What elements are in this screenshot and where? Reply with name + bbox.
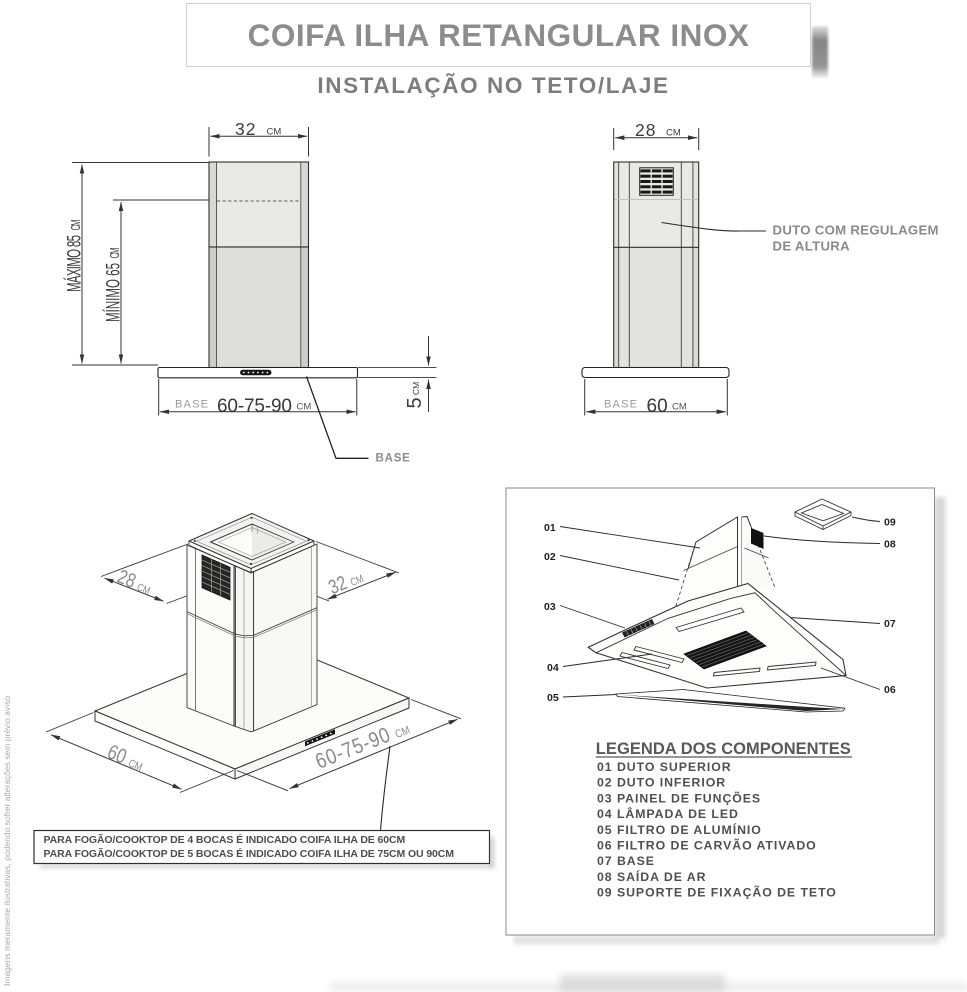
svg-text:08 SAÍDA DE AR: 08 SAÍDA DE AR (597, 869, 706, 884)
svg-text:CM: CM (672, 402, 687, 413)
svg-text:BASE: BASE (604, 399, 638, 411)
svg-text:01 DUTO SUPERIOR: 01 DUTO SUPERIOR (597, 760, 732, 774)
svg-text:PARA FOGÃO/COOKTOP DE 5 BOCAS: PARA FOGÃO/COOKTOP DE 5 BOCAS É INDICADO… (44, 847, 455, 860)
svg-text:60: 60 (647, 396, 668, 417)
svg-text:32: 32 (235, 119, 256, 139)
svg-text:03 PAINEL DE FUNÇÕES: 03 PAINEL DE FUNÇÕES (597, 790, 761, 805)
svg-text:04 LÂMPADA DE LED: 04 LÂMPADA DE LED (597, 806, 739, 821)
svg-text:DUTO COM REGULAGEM: DUTO COM REGULAGEM (773, 223, 939, 238)
svg-text:08: 08 (884, 539, 896, 551)
svg-text:05 FILTRO DE ALUMÍNIO: 05 FILTRO DE ALUMÍNIO (597, 822, 762, 837)
svg-text:BASE: BASE (376, 453, 411, 465)
svg-text:09: 09 (884, 517, 896, 529)
svg-text:CM: CM (411, 382, 421, 395)
svg-text:07 BASE: 07 BASE (597, 854, 655, 868)
svg-text:05: 05 (547, 692, 559, 704)
svg-text:03: 03 (544, 601, 556, 613)
svg-text:06 FILTRO DE CARVÃO ATIVADO: 06 FILTRO DE CARVÃO ATIVADO (597, 838, 817, 853)
svg-text:LEGENDA DOS COMPONENTES: LEGENDA DOS COMPONENTES (596, 740, 851, 758)
svg-text:60-75-90: 60-75-90 (217, 396, 292, 417)
svg-text:32CM: 32CM (325, 565, 366, 599)
svg-text:06: 06 (884, 684, 896, 696)
svg-text:MÍNIMO 65: MÍNIMO 65 (101, 263, 124, 322)
svg-text:PARA FOGÃO/COOKTOP DE 4 BOCAS: PARA FOGÃO/COOKTOP DE 4 BOCAS É INDICADO… (44, 833, 406, 846)
svg-text:MÁXIMO 85: MÁXIMO 85 (62, 235, 85, 292)
svg-text:DE ALTURA: DE ALTURA (773, 239, 851, 254)
svg-text:CM: CM (267, 127, 282, 138)
svg-text:CM: CM (108, 248, 123, 259)
svg-text:5: 5 (404, 397, 426, 408)
svg-text:CM: CM (666, 128, 681, 139)
svg-text:CM: CM (297, 402, 312, 413)
svg-text:07: 07 (884, 618, 896, 630)
svg-text:BASE: BASE (175, 399, 209, 411)
svg-text:CM: CM (69, 220, 84, 231)
svg-text:60CM: 60CM (104, 740, 147, 776)
svg-text:02: 02 (544, 551, 556, 563)
svg-text:01: 01 (544, 522, 556, 534)
svg-text:04: 04 (547, 662, 559, 674)
svg-text:28CM: 28CM (114, 565, 155, 599)
svg-text:09 SUPORTE DE FIXAÇÃO DE TETO: 09 SUPORTE DE FIXAÇÃO DE TETO (597, 885, 837, 900)
svg-text:28: 28 (635, 120, 656, 140)
svg-text:02 DUTO INFERIOR: 02 DUTO INFERIOR (597, 776, 726, 790)
